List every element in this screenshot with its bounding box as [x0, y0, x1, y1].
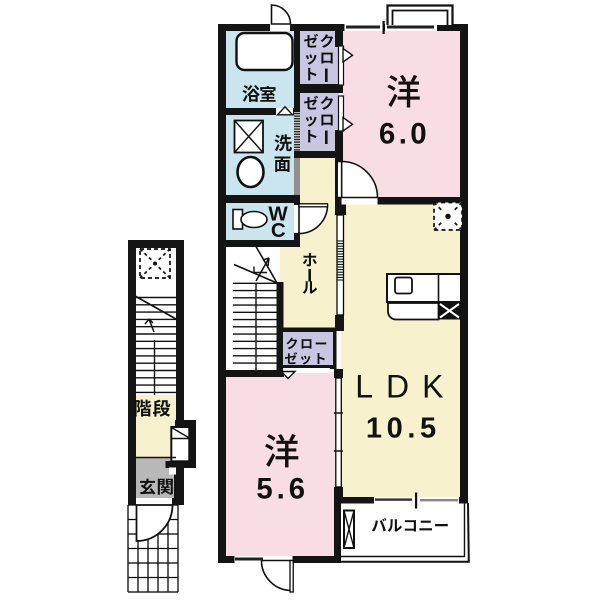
svg-text:10.5: 10.5	[366, 413, 441, 445]
svg-text:5.6: 5.6	[256, 472, 309, 505]
svg-text:6.0: 6.0	[379, 118, 430, 151]
svg-text:C: C	[271, 219, 286, 242]
svg-text:LDK: LDK	[355, 369, 456, 405]
